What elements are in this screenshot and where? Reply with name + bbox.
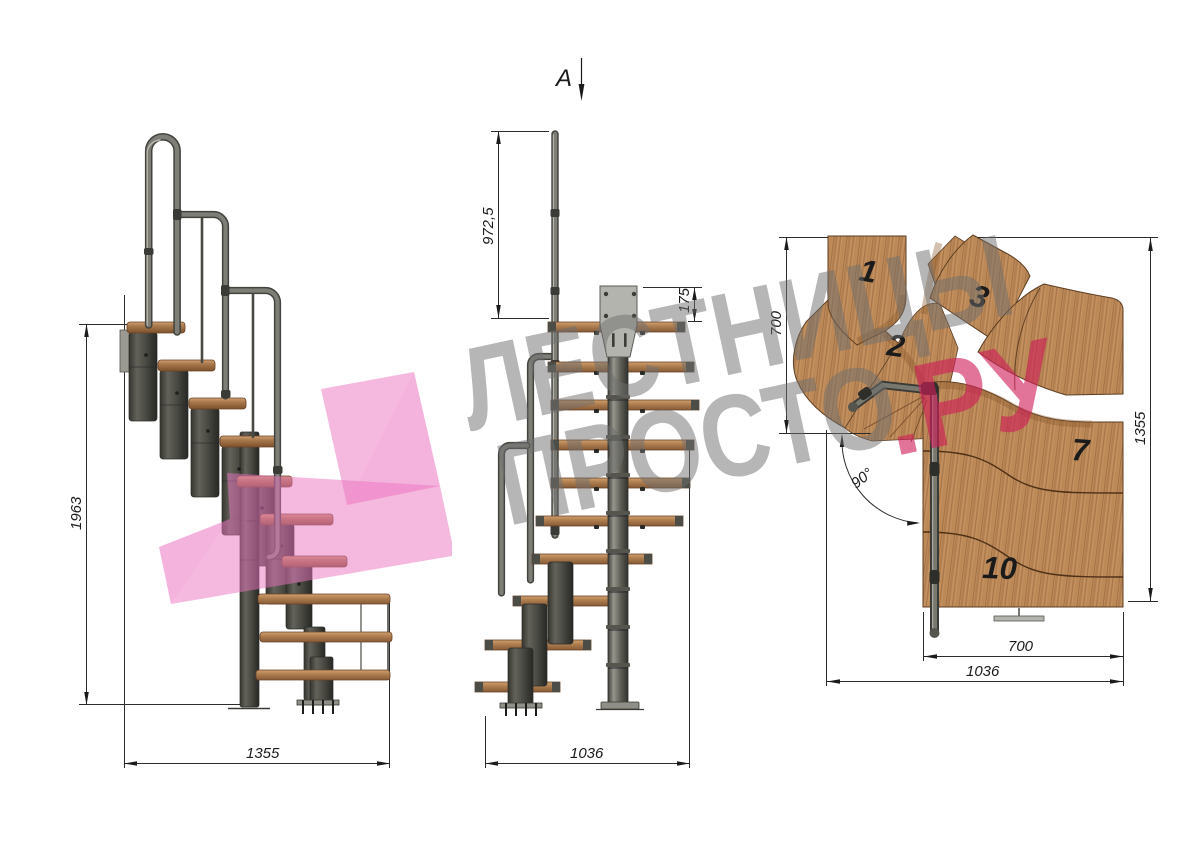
svg-text:1036: 1036 bbox=[966, 663, 1000, 680]
svg-text:700: 700 bbox=[1008, 638, 1034, 655]
svg-text:A: A bbox=[554, 65, 572, 92]
svg-text:1355: 1355 bbox=[246, 745, 280, 762]
svg-text:1355: 1355 bbox=[1132, 411, 1149, 445]
svg-text:10: 10 bbox=[982, 550, 1018, 586]
svg-text:1036: 1036 bbox=[570, 745, 604, 762]
svg-text:1963: 1963 bbox=[68, 496, 85, 530]
svg-text:972,5: 972,5 bbox=[480, 207, 497, 245]
